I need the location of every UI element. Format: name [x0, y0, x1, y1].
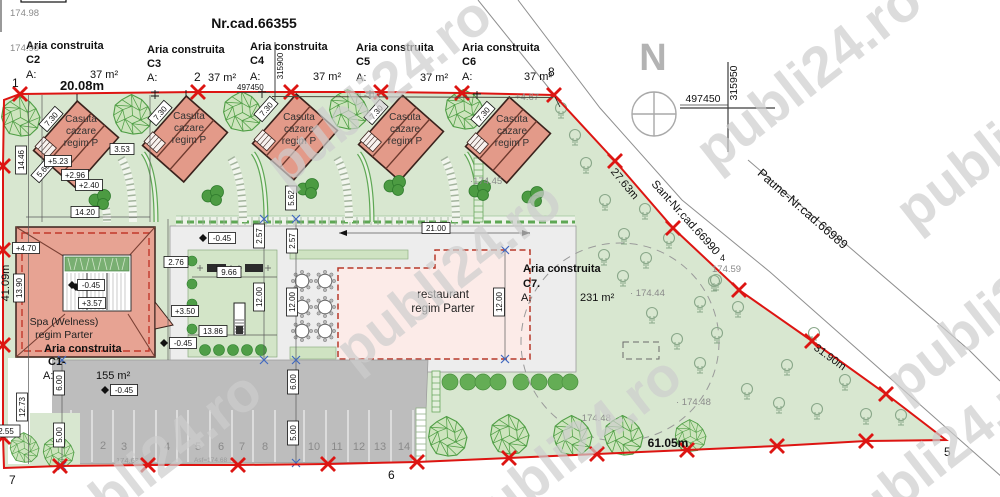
svg-text:Casuta: Casuta: [173, 111, 205, 122]
svg-text:Aria construita: Aria construita: [147, 44, 226, 56]
svg-text:Spa (Welness): Spa (Welness): [30, 316, 99, 328]
svg-text:174.59: 174.59: [712, 264, 741, 275]
svg-text:regim Parter: regim Parter: [35, 329, 93, 341]
svg-text:A:: A:: [521, 292, 531, 304]
svg-text:497450: 497450: [685, 93, 720, 105]
svg-text:41.09m: 41.09m: [0, 265, 12, 302]
svg-text:2: 2: [194, 70, 201, 84]
svg-text:A:: A:: [462, 71, 472, 83]
svg-text:publi24.ro: publi24.ro: [683, 0, 933, 182]
svg-text:37 m²: 37 m²: [208, 72, 236, 84]
svg-text:Paune-Nr.cad.66989: Paune-Nr.cad.66989: [755, 166, 851, 252]
svg-text:· 174.44: · 174.44: [630, 288, 665, 299]
svg-text:+3.57: +3.57: [82, 299, 103, 308]
svg-text:A:: A:: [147, 72, 157, 84]
svg-text:regim P: regim P: [495, 138, 530, 149]
svg-text:cazare: cazare: [390, 124, 420, 135]
svg-text:10: 10: [308, 441, 320, 453]
svg-text:cazare: cazare: [174, 123, 204, 134]
svg-text:7: 7: [9, 473, 16, 487]
svg-text:12.00: 12.00: [288, 291, 297, 312]
svg-text:C7.: C7.: [523, 278, 540, 290]
svg-text:4: 4: [720, 253, 725, 263]
svg-text:Nr.cad.66355: Nr.cad.66355: [211, 15, 297, 31]
svg-text:2: 2: [100, 440, 106, 452]
svg-text:8: 8: [548, 65, 555, 79]
svg-text:12.00: 12.00: [255, 286, 264, 307]
svg-text:publi24.ro: publi24.ro: [883, 27, 1000, 241]
svg-text:A:: A:: [26, 69, 36, 81]
svg-text:20.08m: 20.08m: [60, 78, 104, 93]
svg-text:cazare: cazare: [497, 126, 527, 137]
svg-text:Casuta: Casuta: [65, 114, 97, 125]
svg-text:13.86: 13.86: [203, 327, 224, 336]
svg-text:+4.70: +4.70: [16, 244, 37, 253]
svg-text:3.53: 3.53: [114, 145, 130, 154]
svg-text:174.98: 174.98: [10, 8, 39, 19]
svg-text:174.90: 174.90: [10, 43, 39, 54]
svg-text:6: 6: [388, 468, 395, 482]
svg-text:12: 12: [353, 441, 365, 453]
svg-text:155 m²: 155 m²: [96, 370, 131, 382]
svg-text:6.00: 6.00: [289, 374, 298, 390]
svg-text:14.46: 14.46: [17, 149, 26, 170]
svg-text:12.00: 12.00: [495, 291, 504, 312]
svg-text:11: 11: [331, 441, 342, 453]
svg-text:7: 7: [239, 441, 245, 453]
svg-text:C4: C4: [250, 55, 265, 67]
svg-text:2.57: 2.57: [288, 233, 297, 249]
svg-text:regim P: regim P: [64, 138, 99, 149]
svg-text:+2.40: +2.40: [79, 181, 100, 190]
svg-text:+5.23: +5.23: [48, 157, 69, 166]
svg-text:231 m²: 231 m²: [580, 292, 615, 304]
svg-text:Aria construita: Aria construita: [523, 263, 602, 275]
svg-text:14: 14: [398, 441, 410, 453]
svg-text:+2.96: +2.96: [65, 171, 86, 180]
svg-text:21.00: 21.00: [426, 224, 447, 233]
svg-text:5.00: 5.00: [55, 427, 64, 443]
svg-text:13: 13: [374, 441, 386, 453]
svg-text:A:: A:: [250, 71, 260, 83]
svg-text:-0.45: -0.45: [115, 386, 134, 395]
svg-text:C3: C3: [147, 58, 161, 70]
svg-text:61.05m: 61.05m: [648, 436, 689, 450]
svg-text:A:: A:: [43, 370, 53, 382]
svg-text:C1-: C1-: [48, 356, 66, 368]
svg-text:2.57: 2.57: [255, 228, 264, 244]
svg-text:+3.50: +3.50: [175, 307, 196, 316]
svg-text:1: 1: [12, 76, 19, 90]
svg-text:8: 8: [262, 441, 268, 453]
svg-text:N: N: [639, 37, 666, 79]
svg-text:6.00: 6.00: [55, 375, 64, 391]
svg-text:-0.45: -0.45: [174, 339, 193, 348]
svg-text:2.55: 2.55: [0, 427, 14, 436]
svg-text:C2: C2: [26, 54, 40, 66]
svg-text:-0.45: -0.45: [213, 234, 232, 243]
svg-text:12.73: 12.73: [18, 396, 27, 417]
svg-text:·174.45: ·174.45: [470, 176, 502, 187]
svg-text:315900: 315900: [276, 52, 285, 79]
svg-text:9.66: 9.66: [221, 268, 237, 277]
svg-text:14.20: 14.20: [75, 208, 96, 217]
svg-text:497450: 497450: [237, 83, 264, 92]
svg-text:regim P: regim P: [388, 136, 423, 147]
svg-text:Aria construita: Aria construita: [44, 343, 123, 355]
svg-text:13.90: 13.90: [15, 277, 24, 298]
svg-text:Casuta: Casuta: [496, 114, 528, 125]
svg-text:Aria construita: Aria construita: [250, 41, 329, 53]
svg-text:-0.45: -0.45: [82, 281, 101, 290]
svg-text:5.00: 5.00: [289, 425, 298, 441]
svg-text:2.76: 2.76: [168, 258, 184, 267]
svg-text:cazare: cazare: [66, 126, 96, 137]
svg-text:regim P: regim P: [172, 135, 207, 146]
